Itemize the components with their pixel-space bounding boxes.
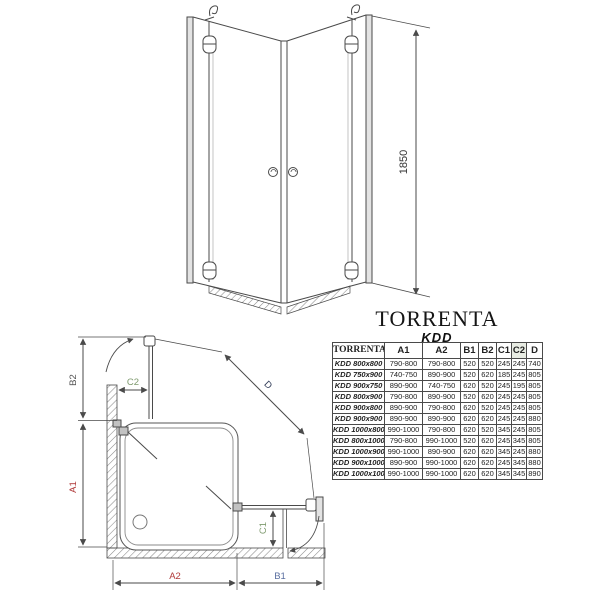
cell-a2: 790-800	[423, 425, 461, 436]
front-view-drawing: 1850	[187, 5, 430, 314]
door-swing-arc	[106, 339, 133, 372]
brand-title: TORRENTA	[332, 308, 542, 330]
cell-c1: 245	[497, 436, 512, 447]
cell-d: 805	[527, 436, 543, 447]
cell-a1: 890-900	[385, 458, 423, 469]
cell-a1: 790-800	[385, 392, 423, 403]
table-row: KDD 900x750890-900740-750620520245195805	[333, 381, 543, 392]
cell-a1: 790-800	[385, 359, 423, 370]
cell-c1: 245	[497, 359, 512, 370]
height-dimension: 1850	[372, 16, 430, 297]
header-b2: B2	[479, 343, 497, 359]
cell-b1: 620	[461, 425, 479, 436]
cell-a2: 990-1000	[423, 458, 461, 469]
cell-d: 890	[527, 469, 543, 480]
dimension-a2: A2	[113, 553, 237, 590]
dim-label-b1: B1	[274, 571, 286, 582]
cell-a2: 990-1000	[423, 436, 461, 447]
cell-c1: 245	[497, 381, 512, 392]
cell-c1: 245	[497, 458, 512, 469]
cell-d: 805	[527, 392, 543, 403]
header-b1: B1	[461, 343, 479, 359]
cell-c1: 245	[497, 403, 512, 414]
cell-d: 880	[527, 447, 543, 458]
cell-c2: 245	[512, 392, 527, 403]
cell-a1: 740-750	[385, 370, 423, 381]
dim-label-d: D	[261, 379, 274, 392]
cell-c2: 245	[512, 359, 527, 370]
cell-b1: 620	[461, 447, 479, 458]
technical-sheet: 1850	[0, 0, 600, 600]
table-row: KDD 900x1000890-900990-10006206202453458…	[333, 458, 543, 469]
dim-label-c1: C1	[258, 522, 269, 534]
hinge-icon	[203, 262, 216, 279]
cell-c2: 245	[512, 370, 527, 381]
cell-b1: 620	[461, 403, 479, 414]
cell-d: 740	[527, 359, 543, 370]
cell-c2: 345	[512, 469, 527, 480]
cell-b1: 620	[461, 458, 479, 469]
cell-c2: 245	[512, 403, 527, 414]
left-bracket-hook-icon	[205, 6, 218, 20]
cell-model: KDD 900x900	[333, 414, 385, 425]
cell-a1: 990-1000	[385, 425, 423, 436]
cell-b2: 620	[479, 414, 497, 425]
hinge-icon	[144, 336, 155, 346]
cell-c2: 345	[512, 436, 527, 447]
cell-b2: 520	[479, 359, 497, 370]
cell-a2: 990-1000	[423, 469, 461, 480]
left-wall-hatched	[107, 385, 117, 548]
header-c1: C1	[497, 343, 512, 359]
cell-c1: 185	[497, 370, 512, 381]
cell-b2: 620	[479, 458, 497, 469]
dimension-c2: C2	[119, 377, 147, 390]
table-row: KDD 750x900740-750890-900520620185245805	[333, 370, 543, 381]
dim-label-a2: A2	[169, 571, 181, 582]
cell-model: KDD 900x750	[333, 381, 385, 392]
table-header-row: TORRENTA A1 A2 B1 B2 C1 C2 D	[333, 343, 543, 359]
door-swing-arc	[290, 516, 319, 551]
shower-tray	[120, 423, 238, 550]
cell-model: KDD 750x900	[333, 370, 385, 381]
cell-a2: 890-900	[423, 414, 461, 425]
cell-d: 880	[527, 458, 543, 469]
title-block: TORRENTA KDD	[332, 308, 542, 344]
cell-a2: 890-900	[423, 447, 461, 458]
cell-b2: 620	[479, 370, 497, 381]
header-d: D	[527, 343, 543, 359]
cell-model: KDD 1000x900	[333, 447, 385, 458]
cell-c1: 345	[497, 447, 512, 458]
bottom-wall-hatched	[288, 548, 325, 558]
height-dimension-label: 1850	[398, 150, 410, 174]
cell-a2: 890-900	[423, 370, 461, 381]
cell-c1: 345	[497, 469, 512, 480]
cell-c2: 245	[512, 414, 527, 425]
cell-b2: 620	[479, 436, 497, 447]
table-row: KDD 900x900890-900890-900620620245245880	[333, 414, 543, 425]
cell-model: KDD 800x900	[333, 392, 385, 403]
plan-view-drawing: B2 A1 C2 A2	[68, 336, 325, 590]
hinge-icon	[345, 262, 358, 279]
cell-b1: 520	[461, 370, 479, 381]
table-row: KDD 1000x800990-1000790-8006205203452458…	[333, 425, 543, 436]
cell-d: 805	[527, 370, 543, 381]
cell-b2: 520	[479, 381, 497, 392]
dim-label-c2: C2	[127, 377, 139, 388]
cell-c1: 345	[497, 425, 512, 436]
center-corner-post	[281, 41, 287, 303]
dim-label-a1: A1	[68, 481, 79, 493]
cell-d: 805	[527, 403, 543, 414]
cell-c1: 245	[497, 414, 512, 425]
cell-a1: 990-1000	[385, 469, 423, 480]
spec-table: TORRENTA A1 A2 B1 B2 C1 C2 D KDD 800x800…	[332, 342, 543, 480]
cell-a1: 890-900	[385, 403, 423, 414]
right-wall-profile	[366, 15, 372, 283]
cell-a1: 990-1000	[385, 447, 423, 458]
cell-model: KDD 1000x800	[333, 425, 385, 436]
cell-model: KDD 800x1000	[333, 436, 385, 447]
cell-a1: 890-900	[385, 414, 423, 425]
cell-c2: 245	[512, 447, 527, 458]
dimension-a1: A1	[68, 424, 107, 547]
cell-b2: 620	[479, 469, 497, 480]
cell-c2: 245	[512, 425, 527, 436]
cell-b2: 520	[479, 403, 497, 414]
cell-model: KDD 900x800	[333, 403, 385, 414]
dim-label-b2: B2	[68, 374, 79, 386]
cell-c2: 345	[512, 458, 527, 469]
cell-b1: 620	[461, 414, 479, 425]
cell-d: 805	[527, 381, 543, 392]
table-row: KDD 1000x900990-1000890-9006206203452458…	[333, 447, 543, 458]
cell-b1: 620	[461, 381, 479, 392]
right-wall-post	[316, 497, 323, 521]
left-wall-profile	[187, 17, 193, 283]
cell-b2: 620	[479, 447, 497, 458]
hinge-icon	[345, 36, 358, 53]
cell-c2: 195	[512, 381, 527, 392]
hinge-icon	[306, 499, 316, 511]
cell-a1: 790-800	[385, 436, 423, 447]
cell-b1: 520	[461, 359, 479, 370]
shower-enclosure-diagram: 1850	[0, 0, 600, 600]
hinge-icon	[203, 36, 216, 53]
cell-d: 880	[527, 414, 543, 425]
dimension-c1: C1	[258, 511, 273, 546]
table-row: KDD 1000x1000990-1000990-100062062034534…	[333, 469, 543, 480]
cell-a2: 740-750	[423, 381, 461, 392]
cell-b1: 520	[461, 392, 479, 403]
table-row: KDD 900x800890-900790-800620520245245805	[333, 403, 543, 414]
spec-table-body: KDD 800x800790-800790-800520520245245740…	[333, 359, 543, 480]
cell-b1: 620	[461, 469, 479, 480]
header-a1: A1	[385, 343, 423, 359]
cell-b2: 620	[479, 392, 497, 403]
table-row: KDD 800x1000790-800990-10005206202453458…	[333, 436, 543, 447]
header-c2: C2	[512, 343, 527, 359]
cell-a1: 890-900	[385, 381, 423, 392]
cell-model: KDD 1000x1000	[333, 469, 385, 480]
cell-a2: 790-800	[423, 359, 461, 370]
cell-b2: 520	[479, 425, 497, 436]
cell-b1: 520	[461, 436, 479, 447]
table-row: KDD 800x800790-800790-800520520245245740	[333, 359, 543, 370]
cell-model: KDD 900x1000	[333, 458, 385, 469]
cell-c1: 245	[497, 392, 512, 403]
cell-a2: 890-900	[423, 392, 461, 403]
header-torrenta: TORRENTA	[333, 343, 385, 359]
cell-a2: 790-800	[423, 403, 461, 414]
cell-d: 805	[527, 425, 543, 436]
header-a2: A2	[423, 343, 461, 359]
table-row: KDD 800x900790-800890-900520620245245805	[333, 392, 543, 403]
cell-model: KDD 800x800	[333, 359, 385, 370]
